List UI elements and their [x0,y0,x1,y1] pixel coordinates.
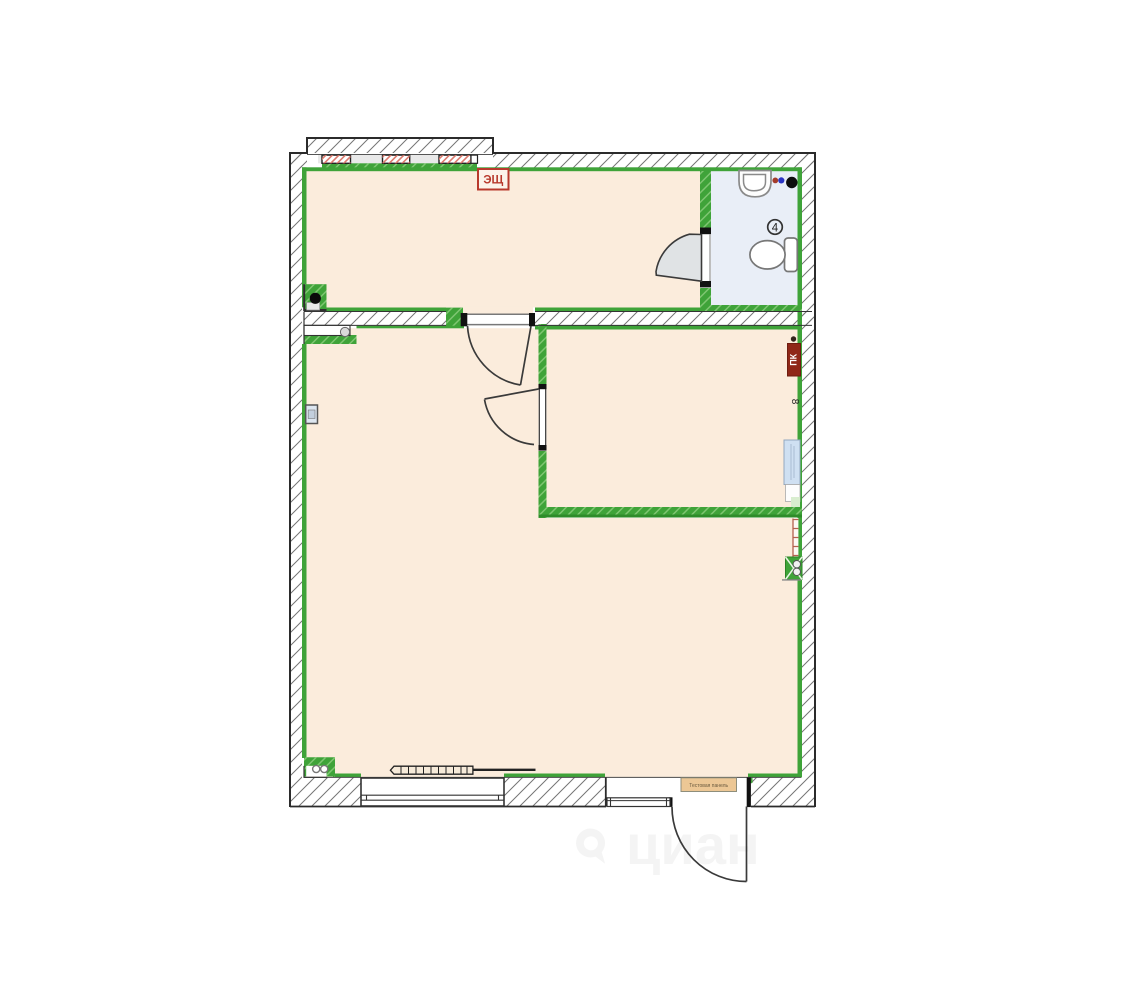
svg-text:Тестовая панель: Тестовая панель [689,783,728,789]
svg-text:ПК: ПК [788,353,798,365]
svg-text:4: 4 [772,222,779,234]
svg-text:8: 8 [789,399,800,405]
svg-text:циан: циан [626,813,760,876]
svg-text:ЭЩ: ЭЩ [483,175,503,187]
